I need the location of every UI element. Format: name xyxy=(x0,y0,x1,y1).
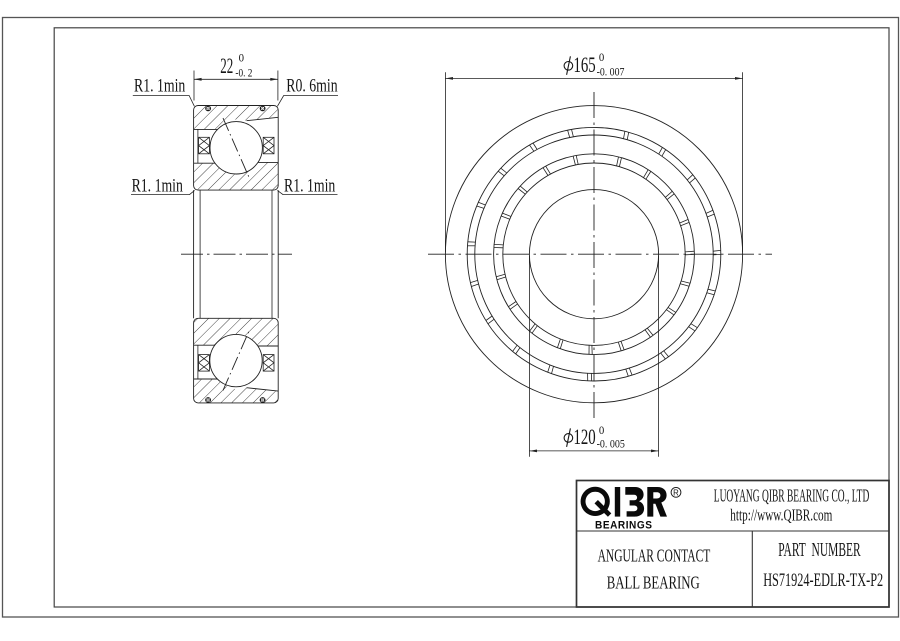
svg-text:-0. 2: -0. 2 xyxy=(235,66,252,80)
svg-text:R1. 1min: R1. 1min xyxy=(132,176,184,197)
svg-text:-0. 007: -0. 007 xyxy=(597,64,625,78)
svg-text:http://www.QIBR.com: http://www.QIBR.com xyxy=(730,505,832,524)
svg-text:HS71924-EDLR-TX-P2: HS71924-EDLR-TX-P2 xyxy=(763,570,883,591)
svg-text:120: 120 xyxy=(574,424,596,449)
svg-text:BEARINGS: BEARINGS xyxy=(595,520,653,532)
svg-text:LUOYANG QIBR BEARING CO., LTD: LUOYANG QIBR BEARING CO., LTD xyxy=(714,486,870,506)
svg-text:0: 0 xyxy=(599,50,604,64)
svg-text:165: 165 xyxy=(574,52,596,77)
svg-text:BALL BEARING: BALL BEARING xyxy=(607,573,700,593)
svg-text:PART NUMBER: PART NUMBER xyxy=(778,539,861,561)
svg-text:0: 0 xyxy=(239,51,244,65)
svg-text:R1. 1min: R1. 1min xyxy=(134,76,186,97)
svg-text:ANGULAR CONTACT: ANGULAR CONTACT xyxy=(598,545,711,565)
svg-text:-0. 005: -0. 005 xyxy=(597,436,625,450)
svg-text:R0. 6min: R0. 6min xyxy=(286,76,338,97)
svg-text:R1. 1min: R1. 1min xyxy=(284,176,336,197)
svg-text:0: 0 xyxy=(599,423,604,437)
svg-text:R: R xyxy=(673,489,679,498)
svg-text:22: 22 xyxy=(220,53,233,78)
